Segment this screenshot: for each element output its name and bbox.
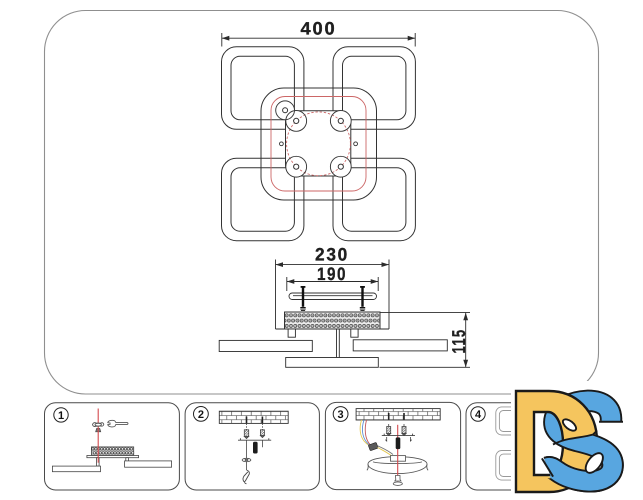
svg-text:115: 115 [448,329,469,354]
svg-text:2: 2 [198,409,204,421]
svg-text:190: 190 [317,264,347,284]
svg-text:1: 1 [58,410,64,422]
svg-text:230: 230 [315,245,349,265]
svg-text:4: 4 [475,409,482,421]
svg-text:3: 3 [338,409,344,421]
svg-text:400: 400 [301,19,337,39]
